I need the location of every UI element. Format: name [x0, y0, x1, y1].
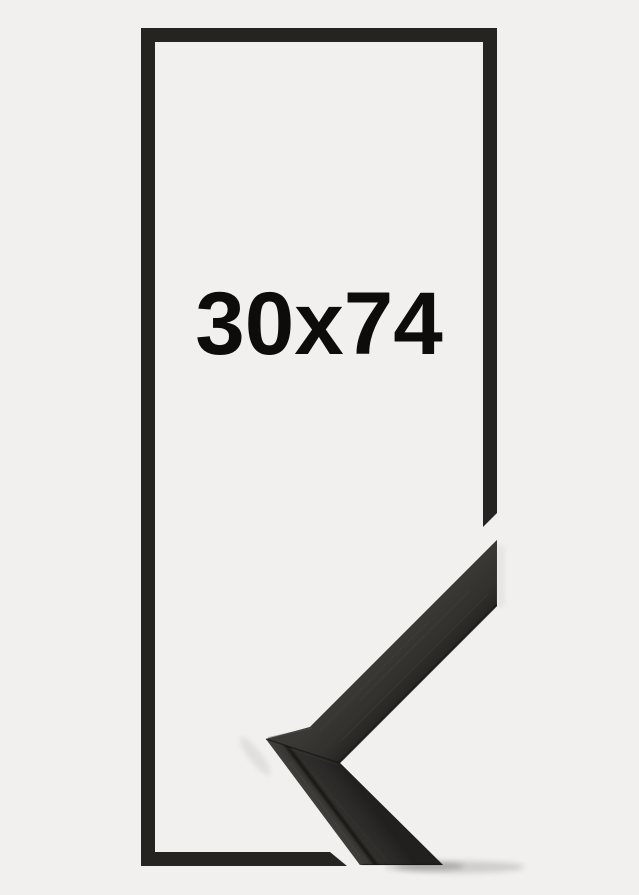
- product-image-canvas: 30x74: [0, 0, 639, 895]
- moulding-upper-arm: [266, 540, 497, 763]
- frame-corner-photo: [0, 0, 639, 895]
- moulding-corner: [266, 540, 497, 865]
- moulding-lower-arm: [266, 739, 443, 865]
